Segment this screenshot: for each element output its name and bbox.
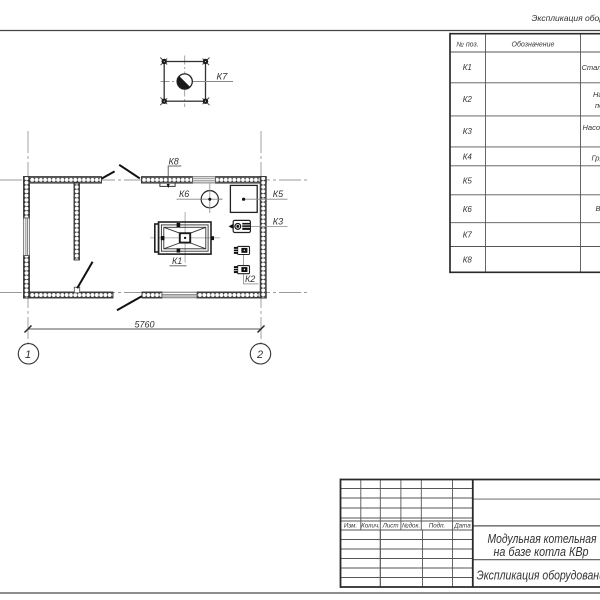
svg-text:№ поз.: № поз. (456, 42, 478, 49)
svg-text:К3: К3 (273, 216, 283, 226)
svg-text:на базе котла КВр: на базе котла КВр (494, 544, 589, 559)
svg-text:Вентилятор: Вентилятор (596, 204, 600, 213)
svg-text:Обозначение: Обозначение (512, 41, 555, 49)
svg-text:К1: К1 (172, 256, 182, 266)
svg-text:К2: К2 (463, 95, 473, 104)
svg-text:К1: К1 (463, 63, 472, 72)
svg-text:5760: 5760 (134, 320, 154, 330)
svg-text:К6: К6 (463, 205, 473, 214)
svg-text:№док.: №док. (402, 523, 420, 530)
svg-text:Изм.: Изм. (344, 523, 357, 530)
svg-text:Колич.: Колич. (361, 523, 380, 530)
svg-text:К7: К7 (463, 231, 473, 240)
svg-text:К5: К5 (273, 189, 284, 199)
svg-text:Стальной котел: Стальной котел (582, 63, 600, 72)
svg-text:К6: К6 (179, 189, 189, 199)
svg-text:Дата: Дата (453, 523, 471, 530)
svg-text:2: 2 (256, 349, 263, 361)
svg-text:Подп.: Подп. (429, 523, 445, 530)
svg-text:К8: К8 (463, 255, 473, 264)
svg-text:К8: К8 (169, 156, 179, 166)
svg-text:К7: К7 (217, 72, 229, 83)
svg-text:подпиточный: подпиточный (595, 101, 600, 110)
svg-text:Лист: Лист (382, 523, 399, 530)
svg-text:1: 1 (25, 349, 31, 361)
svg-text:К5: К5 (463, 176, 473, 185)
svg-text:К4: К4 (463, 152, 473, 161)
svg-text:К3: К3 (463, 127, 473, 136)
svg-text:Экспликация оборудования: Экспликация оборудования (532, 13, 600, 23)
svg-text:Грязевик: Грязевик (592, 154, 600, 163)
svg-text:К2: К2 (245, 274, 255, 284)
svg-text:Насос сетевой: Насос сетевой (593, 90, 600, 99)
svg-text:Насос циркуляционный: Насос циркуляционный (583, 123, 600, 132)
svg-text:Экспликация оборудования: Экспликация оборудования (477, 569, 600, 583)
